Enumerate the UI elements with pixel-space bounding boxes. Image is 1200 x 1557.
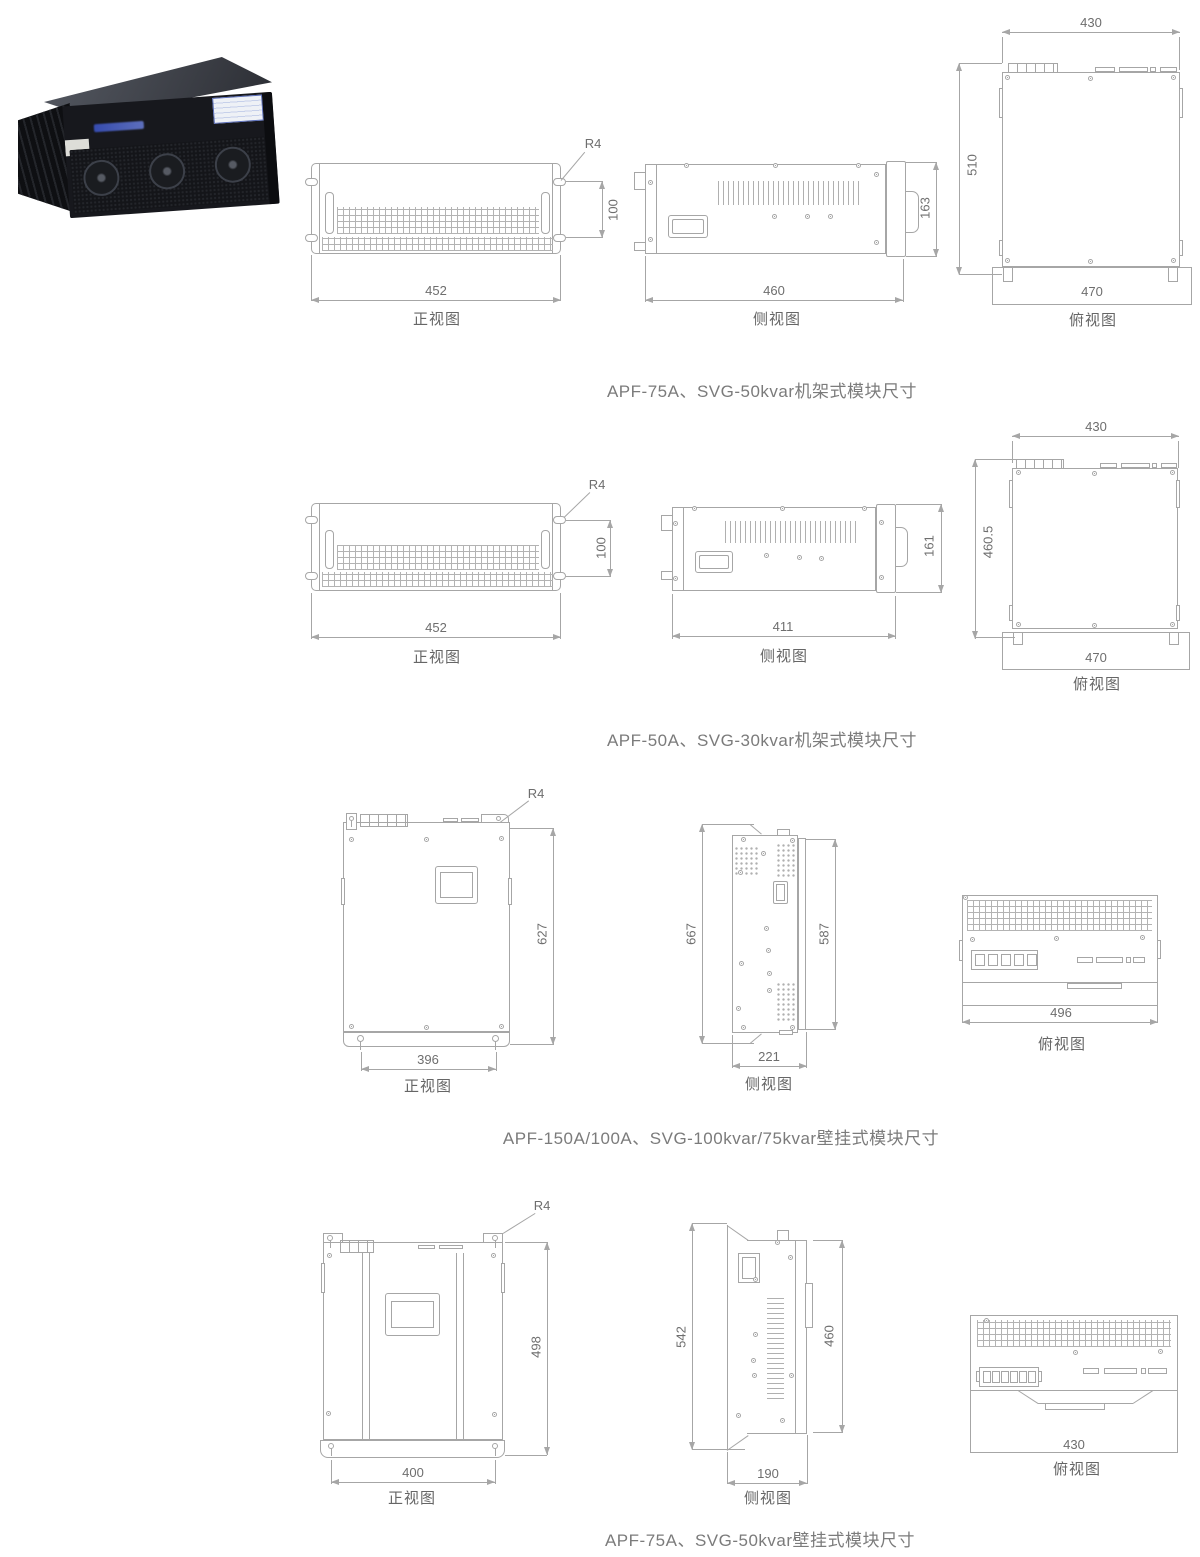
fan-icon	[214, 145, 252, 183]
view-label: 侧视图	[745, 1073, 793, 1094]
screw-icon	[1170, 470, 1175, 475]
screw-icon	[764, 926, 769, 931]
terminal-cell	[983, 1371, 991, 1383]
screw-icon	[1016, 470, 1021, 475]
terminal-comb	[1008, 63, 1058, 73]
extension-line	[566, 181, 602, 182]
front-overhang-side	[1157, 983, 1158, 1005]
terminal-cell	[1019, 1371, 1027, 1383]
screw-icon	[767, 988, 772, 993]
side-hinge	[321, 1263, 325, 1293]
view-label: 俯视图	[1073, 673, 1121, 694]
screw-icon	[1005, 258, 1010, 263]
vent-slots	[767, 1295, 784, 1399]
view-label: 侧视图	[744, 1487, 792, 1508]
dim-line-depth	[959, 63, 960, 275]
keyhole-stem	[495, 1041, 496, 1050]
dim-text-base: 470	[1085, 650, 1107, 665]
extension-line	[903, 259, 904, 302]
terminal-cell	[1001, 954, 1011, 966]
ear-slot	[553, 572, 566, 580]
dim-text-depth: 510	[965, 154, 980, 176]
side-rail	[1176, 605, 1180, 621]
extension-line	[975, 637, 1015, 638]
screw-icon	[492, 1412, 497, 1417]
dim-line-height	[936, 162, 937, 257]
screw-icon	[789, 1373, 794, 1378]
connector-slot	[439, 1245, 463, 1249]
photo-front-face	[62, 92, 279, 218]
screw-icon	[963, 895, 968, 900]
ear-slot	[553, 178, 566, 186]
connector-slot	[1160, 67, 1177, 72]
perforation-grid	[967, 900, 1152, 931]
screw-icon	[349, 837, 354, 842]
screw-icon	[736, 1413, 741, 1418]
body-outline	[343, 822, 510, 1032]
screw-icon	[673, 521, 678, 526]
screw-icon	[773, 163, 778, 168]
side-rail	[1157, 940, 1161, 959]
terminal-cell	[988, 954, 998, 966]
r4-leader	[503, 1213, 536, 1234]
screw-icon	[1016, 622, 1021, 627]
terminal-cell	[975, 954, 985, 966]
dim-line-height	[602, 181, 603, 238]
ear-slot	[305, 234, 318, 242]
dim-line-width	[732, 1066, 807, 1067]
connector-slot	[1104, 1368, 1137, 1374]
connector-slot	[1141, 1368, 1146, 1374]
fan-icon	[82, 159, 120, 197]
screw-icon	[648, 180, 653, 185]
connector-slot	[1083, 1368, 1099, 1374]
handle-inner	[672, 219, 704, 234]
extension-line	[959, 63, 1002, 64]
screw-icon	[970, 937, 975, 942]
dim-text-width: 496	[1050, 1005, 1072, 1020]
screw-icon	[879, 575, 884, 580]
extension-line	[1178, 441, 1179, 468]
side-hinge	[508, 878, 512, 905]
dim-text-height: 100	[594, 537, 609, 559]
bottom-bracket	[320, 1440, 505, 1458]
fan-icon	[148, 152, 186, 190]
screw-icon	[805, 214, 810, 219]
keyhole-stem	[360, 1041, 361, 1050]
handle	[325, 192, 334, 234]
screw-icon	[1140, 935, 1145, 940]
screw-icon	[741, 1025, 746, 1030]
connector-slot	[1150, 67, 1156, 72]
screw-icon	[1088, 259, 1093, 264]
terminal-tab	[1038, 1371, 1042, 1382]
radius-callout: R4	[534, 1198, 551, 1213]
terminal-comb	[340, 1240, 374, 1253]
dim-line-width	[361, 1069, 496, 1070]
terminal-comb	[360, 814, 408, 827]
screw-icon	[984, 1318, 989, 1323]
screw-icon	[736, 1006, 741, 1011]
dim-text-inner-height: 460	[822, 1325, 837, 1347]
screw-icon	[1088, 76, 1093, 81]
body-outline	[645, 164, 886, 254]
rear-handle	[895, 527, 908, 567]
screw-icon	[828, 214, 833, 219]
foot-tab	[1003, 267, 1013, 282]
handle-inner	[699, 555, 729, 569]
screw-icon	[766, 948, 771, 953]
handle	[541, 530, 550, 569]
extension-line	[975, 459, 1018, 460]
dim-line-top	[1012, 436, 1179, 437]
flange-diagonal	[750, 824, 762, 834]
radius-callout: R4	[589, 477, 606, 492]
view-label: 侧视图	[760, 645, 808, 666]
screw-icon	[874, 172, 879, 177]
view-label: 侧视图	[753, 308, 801, 329]
figure1-caption: APF-75A、SVG-50kvar机架式模块尺寸	[607, 377, 917, 402]
side-rail	[1176, 480, 1180, 508]
flange-edge	[727, 1225, 728, 1450]
screw-icon	[753, 1332, 758, 1337]
dim-text-depth: 460.5	[981, 526, 996, 559]
extension-line	[311, 255, 312, 301]
body-outline	[1002, 72, 1180, 267]
connector-slot	[418, 1245, 435, 1249]
terminal-cell	[1010, 1371, 1018, 1383]
extension-line	[510, 1044, 553, 1045]
dim-line-width	[727, 1483, 807, 1484]
extension-line	[813, 1240, 842, 1241]
keyhole-stem	[495, 1240, 496, 1248]
dim-line-inner-height	[842, 1240, 843, 1433]
screw-icon	[874, 240, 879, 245]
dim-line-width	[311, 300, 561, 301]
extension-line	[566, 576, 610, 577]
body-outline	[672, 507, 876, 591]
ear-divider	[319, 504, 320, 590]
flange-top	[714, 824, 754, 825]
ear-divider	[319, 164, 320, 253]
side-rail	[1179, 240, 1183, 256]
screw-icon	[491, 1253, 496, 1258]
screw-icon	[673, 576, 678, 581]
radius-callout: R4	[528, 786, 545, 801]
rail-clip	[805, 1283, 813, 1328]
panel-seam	[369, 1253, 370, 1440]
dim-text-width: 221	[758, 1049, 780, 1064]
dim-line-height	[553, 828, 554, 1045]
body-outline	[1012, 468, 1178, 629]
connector-slot	[1095, 67, 1115, 72]
terminal-comb	[1016, 459, 1064, 469]
fan-grille	[69, 136, 269, 214]
extension-line	[645, 256, 646, 302]
dim-text-top: 430	[1085, 419, 1107, 434]
handle	[325, 530, 334, 569]
dim-text-outer-height: 542	[674, 1326, 689, 1348]
dim-line-width	[962, 1022, 1158, 1023]
connector-slot	[1077, 957, 1093, 963]
screw-icon	[424, 1025, 429, 1030]
connector-slot	[1096, 957, 1123, 963]
dim-text-height: 100	[606, 199, 621, 221]
extension-line	[510, 828, 553, 829]
ear-slot	[305, 178, 318, 186]
panel-seam	[362, 1253, 363, 1440]
connector-slot	[443, 818, 458, 822]
wall-plate	[795, 1240, 807, 1434]
screw-icon	[327, 1253, 332, 1258]
bottom-bracket	[343, 1032, 510, 1047]
screw-icon	[879, 520, 884, 525]
dimension-drawings-page: R4 452 100 正视图 460	[0, 0, 1200, 1557]
screw-icon	[739, 961, 744, 966]
screw-icon	[753, 1277, 758, 1282]
dim-line-height	[610, 520, 611, 577]
side-rail	[1179, 88, 1183, 118]
extension-line	[1179, 37, 1180, 70]
screw-icon	[764, 553, 769, 558]
foot-tab	[1168, 267, 1178, 282]
dim-text-width: 190	[757, 1466, 779, 1481]
r4-leader	[500, 800, 529, 822]
dim-text-width: 430	[1063, 1437, 1085, 1452]
connector-slot	[1121, 463, 1150, 468]
dim-text-width: 460	[763, 283, 785, 298]
vent-perforation	[776, 982, 797, 1023]
front-tab	[661, 571, 673, 580]
screw-icon	[1092, 623, 1097, 628]
dim-text-outer-height: 667	[684, 923, 699, 945]
screw-icon	[788, 1255, 793, 1260]
dim-line-width	[331, 1482, 495, 1483]
flange-diagonal	[727, 1225, 749, 1241]
view-label: 俯视图	[1069, 309, 1117, 330]
panel-seam	[656, 164, 657, 254]
dim-text-width: 400	[402, 1465, 424, 1480]
view-label: 正视图	[388, 1487, 436, 1508]
side-rail	[1009, 480, 1013, 508]
screw-icon	[424, 837, 429, 842]
dim-line-depth	[975, 459, 976, 639]
screw-icon	[741, 837, 746, 842]
wall-plate	[798, 838, 806, 1030]
figure3-caption: APF-150A/100A、SVG-100kvar/75kvar壁挂式模块尺寸	[503, 1124, 939, 1149]
mount-tab	[777, 829, 790, 836]
spec-label	[212, 95, 264, 124]
extension-line	[566, 237, 602, 238]
dim-line-width	[311, 637, 561, 638]
front-overhang-side	[962, 983, 963, 1005]
connector-slot	[1152, 463, 1157, 468]
panel-seam	[456, 1253, 457, 1440]
dim-line-inner-height	[835, 839, 836, 1030]
ear-slot	[305, 516, 318, 524]
screw-icon	[1171, 258, 1176, 263]
extension-line	[496, 1052, 497, 1071]
connector-slot	[1161, 463, 1177, 468]
extension-line	[566, 520, 610, 521]
screw-icon	[1170, 622, 1175, 627]
screw-icon	[692, 506, 697, 511]
extension-line	[906, 256, 936, 257]
ear-slot	[553, 234, 566, 242]
ear-slot	[305, 572, 318, 580]
connector-slot	[1100, 463, 1117, 468]
extension-line	[692, 1223, 727, 1224]
display-screen-inner	[391, 1301, 434, 1328]
view-label: 俯视图	[1038, 1033, 1086, 1054]
screw-icon	[684, 163, 689, 168]
dim-text-base: 470	[1081, 284, 1103, 299]
screw-icon	[797, 555, 802, 560]
terminal-cell	[1027, 954, 1037, 966]
dim-text-inner-height: 587	[817, 923, 832, 945]
r4-leader	[564, 492, 591, 518]
screw-icon	[775, 1240, 780, 1245]
connector-slot	[1119, 67, 1148, 72]
connector-slot	[1126, 957, 1131, 963]
front-edge-line	[970, 1390, 1178, 1391]
dim-text-top: 430	[1080, 15, 1102, 30]
screw-icon	[738, 870, 743, 875]
figure4-caption: APF-75A、SVG-50kvar壁挂式模块尺寸	[605, 1526, 915, 1551]
screw-icon	[751, 1358, 756, 1363]
screw-icon	[499, 1024, 504, 1029]
screw-icon	[856, 163, 861, 168]
screw-icon	[752, 1373, 757, 1378]
recess-tab	[1067, 983, 1122, 989]
view-label: 正视图	[413, 646, 461, 667]
recess-tab	[1045, 1403, 1105, 1410]
vent-perforation	[776, 843, 797, 877]
perforation-grid	[322, 572, 553, 587]
dim-text-width: 452	[425, 620, 447, 635]
flange-diagonal	[750, 1033, 762, 1043]
extension-line	[495, 1460, 496, 1484]
perforation-grid	[322, 237, 553, 251]
view-label: 正视图	[413, 308, 461, 329]
terminal-cell	[992, 1371, 1000, 1383]
body-bottom	[747, 1433, 795, 1434]
handle	[541, 192, 550, 234]
screw-icon	[1158, 1349, 1163, 1354]
extension-line	[959, 274, 1002, 275]
screw-icon	[648, 237, 653, 242]
screw-icon	[790, 838, 795, 843]
connector-slot	[1148, 1368, 1167, 1374]
display-screen-inner	[440, 872, 473, 898]
vent-slots	[718, 181, 860, 205]
mount-tab	[777, 1230, 789, 1241]
keyhole-stem	[330, 1240, 331, 1248]
front-tab	[634, 242, 646, 251]
screw-icon	[1092, 471, 1097, 476]
panel-seam	[683, 507, 684, 591]
rear-cap	[876, 504, 896, 593]
dim-line-width	[672, 636, 896, 637]
extension-line	[1002, 37, 1003, 63]
r4-leader	[561, 152, 586, 181]
screw-icon	[780, 506, 785, 511]
extension-line	[813, 1432, 842, 1433]
foot-tab	[1013, 632, 1023, 645]
screw-icon	[772, 214, 777, 219]
extension-line	[906, 162, 936, 163]
screw-icon	[1073, 1350, 1078, 1355]
extension-line	[806, 839, 835, 840]
panel-seam	[463, 1253, 464, 1440]
terminal-tab	[976, 1371, 980, 1382]
foot-tab	[1169, 632, 1179, 645]
screw-icon	[862, 506, 867, 511]
dim-text-height: 498	[529, 1336, 544, 1358]
extension-line	[505, 1455, 547, 1456]
dim-text-height: 163	[918, 197, 933, 219]
extension-line	[560, 593, 561, 639]
connector-slot	[461, 818, 479, 822]
dim-text-height: 627	[535, 923, 550, 945]
side-hinge	[341, 878, 345, 905]
dim-text-width: 411	[773, 619, 794, 634]
connector-slot	[1133, 957, 1145, 963]
terminal-cell	[1014, 954, 1024, 966]
screw-icon	[761, 851, 766, 856]
dim-text-height: 161	[922, 535, 937, 557]
screw-icon	[1054, 936, 1059, 941]
screw-icon	[767, 971, 772, 976]
extension-line	[311, 593, 312, 639]
screw-icon	[790, 1025, 795, 1030]
terminal-cell	[1028, 1371, 1036, 1383]
body-outline	[323, 1242, 503, 1440]
figure2-caption: APF-50A、SVG-30kvar机架式模块尺寸	[607, 726, 917, 751]
brand-logo	[94, 121, 144, 132]
dim-text-width: 396	[417, 1052, 439, 1067]
front-tab	[661, 515, 673, 531]
screw-icon	[349, 1024, 354, 1029]
side-rail	[1009, 605, 1013, 621]
dim-line-height	[547, 1242, 548, 1455]
vent-slots	[725, 521, 857, 543]
view-label: 俯视图	[1053, 1458, 1101, 1479]
handle-inner	[776, 884, 785, 901]
perforation-grid	[977, 1320, 1171, 1347]
side-hinge	[501, 1263, 505, 1293]
keyhole-stem	[495, 1448, 496, 1456]
extension-line	[560, 255, 561, 301]
screw-icon	[326, 1411, 331, 1416]
dim-line-outer-height	[702, 824, 703, 1044]
view-label: 正视图	[404, 1075, 452, 1096]
screw-icon	[1171, 75, 1176, 80]
extension-line	[896, 592, 941, 593]
perforation-grid	[337, 545, 539, 570]
dim-text-width: 452	[425, 283, 447, 298]
keyhole-stem	[331, 1448, 332, 1456]
extension-line	[806, 1029, 835, 1030]
side-rail	[999, 240, 1003, 256]
radius-callout: R4	[585, 136, 602, 151]
extension-line	[807, 1435, 808, 1484]
perforation-grid	[337, 207, 539, 234]
screw-icon	[780, 1418, 785, 1423]
screw-icon	[819, 556, 824, 561]
terminal-cell	[1001, 1371, 1009, 1383]
extension-line	[896, 504, 941, 505]
